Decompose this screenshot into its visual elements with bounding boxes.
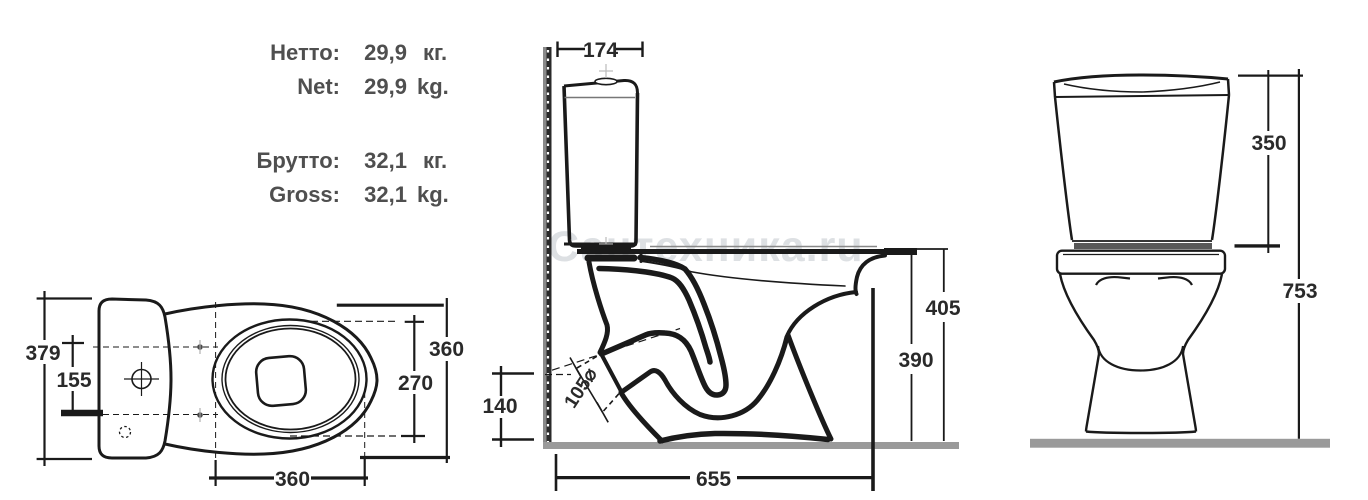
svg-text:360: 360 [275,468,310,491]
svg-text:753: 753 [1282,280,1317,303]
svg-text:390: 390 [898,349,933,372]
svg-text:Нетто:: Нетто: [270,40,340,65]
svg-text:350: 350 [1251,132,1286,155]
svg-text:655: 655 [696,468,731,491]
svg-text:кг.: кг. [423,40,447,65]
svg-text:Net:: Net: [297,74,340,99]
svg-text:кг.: кг. [423,148,447,173]
svg-text:270: 270 [398,372,433,395]
svg-text:405: 405 [925,297,960,320]
svg-text:kg.: kg. [417,182,449,207]
svg-text:155: 155 [56,369,91,392]
svg-text:kg.: kg. [417,74,449,99]
svg-text:29,9: 29,9 [364,40,407,65]
svg-text:32,1: 32,1 [364,148,407,173]
svg-text:29,9: 29,9 [364,74,407,99]
svg-text:Брутто:: Брутто: [257,148,341,173]
svg-text:140: 140 [482,395,517,418]
svg-text:174: 174 [583,39,618,62]
svg-text:Gross:: Gross: [269,182,340,207]
svg-text:379: 379 [25,342,60,365]
svg-text:360: 360 [429,338,464,361]
svg-text:32,1: 32,1 [364,182,407,207]
